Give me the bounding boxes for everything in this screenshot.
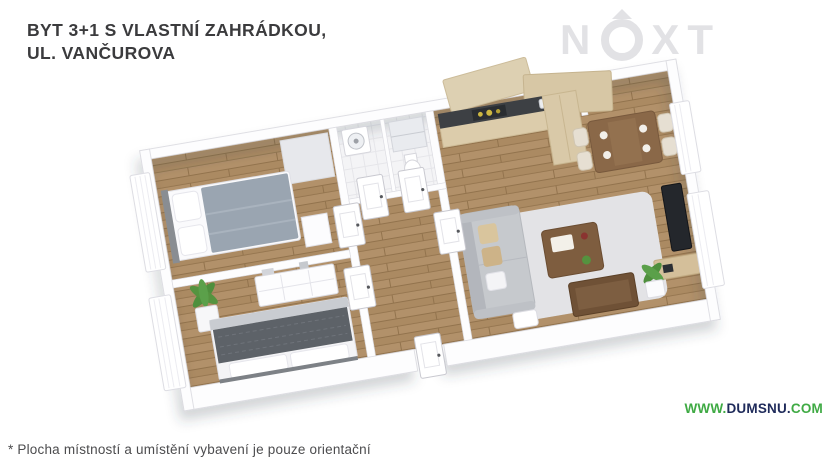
title-line-1: BYT 3+1 S VLASTNÍ ZAHRÁDKOU,: [27, 19, 327, 42]
url-domain: DUMSNU.: [726, 401, 790, 416]
side-table: [512, 309, 538, 329]
dining-chair: [576, 151, 593, 171]
url-www: WWW.: [684, 401, 726, 416]
coffee-table: [541, 222, 604, 279]
nightstand: [301, 213, 332, 247]
sofa-pillow: [481, 245, 503, 267]
website-url: WWW.DUMSNU.COM: [684, 401, 823, 416]
floorplan-3d-render: [0, 0, 832, 467]
pillow: [172, 191, 202, 223]
dining-chair: [572, 127, 589, 147]
title-line-2: UL. VANČUROVA: [27, 42, 327, 65]
plant-pot: [645, 279, 665, 298]
sofa-pillow: [477, 223, 499, 245]
sofa-pillow: [485, 271, 507, 291]
pillow: [177, 224, 207, 256]
disclaimer-note: * Plocha místností a umístění vybavení j…: [8, 442, 371, 457]
url-tld: COM: [791, 401, 823, 416]
listing-title: BYT 3+1 S VLASTNÍ ZAHRÁDKOU, UL. VANČURO…: [27, 19, 327, 65]
listing-image: N X T: [0, 0, 832, 467]
